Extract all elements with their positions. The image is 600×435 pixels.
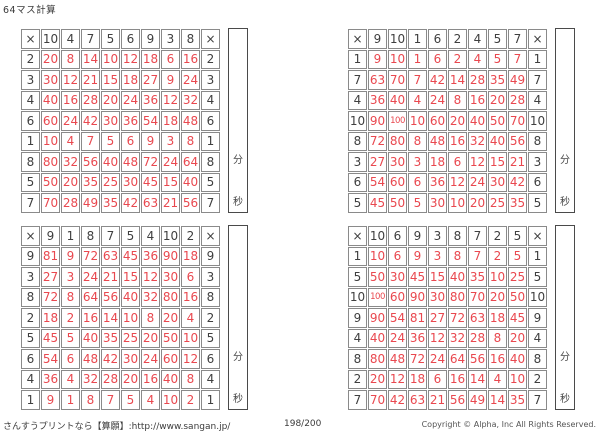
product-cell: 42 xyxy=(101,349,120,369)
product-cell: 16 xyxy=(181,50,200,70)
col-header-cell: 5 xyxy=(121,226,140,246)
product-cell: 50 xyxy=(388,193,407,213)
product-cell: 35 xyxy=(81,173,100,193)
product-cell: 72 xyxy=(141,152,160,172)
product-cell: 40 xyxy=(448,267,467,287)
product-cell: 6 xyxy=(428,50,447,70)
product-cell: 25 xyxy=(121,329,140,349)
product-cell: 8 xyxy=(448,91,467,111)
grid-row: 550203525304515405 xyxy=(21,173,220,193)
product-cell: 90 xyxy=(161,247,180,267)
product-cell: 6 xyxy=(181,267,200,287)
col-header-cell: 6 xyxy=(121,29,140,49)
row-header-cell: 5 xyxy=(201,173,220,193)
footer-copyright: Copyright © Alpha, Inc All Rights Reserv… xyxy=(422,420,596,429)
product-cell: 20 xyxy=(161,308,180,328)
product-cell: 45 xyxy=(508,308,527,328)
product-cell: 63 xyxy=(141,193,160,213)
row-header-cell: 5 xyxy=(348,267,367,287)
product-cell: 70 xyxy=(508,111,527,131)
product-cell: 9 xyxy=(61,247,80,267)
product-cell: 4 xyxy=(488,370,507,390)
operator-cell: × xyxy=(201,29,220,49)
product-cell: 64 xyxy=(181,152,200,172)
operator-cell: × xyxy=(21,29,40,49)
row-header-cell: 3 xyxy=(21,267,40,287)
row-header-cell: 5 xyxy=(201,329,220,349)
minutes-label: 分 xyxy=(556,348,574,363)
product-cell: 20 xyxy=(468,193,487,213)
product-cell: 6 xyxy=(408,173,427,193)
grid-row: 990548127726318459 xyxy=(348,308,547,328)
col-header-cell: 10 xyxy=(368,226,387,246)
product-cell: 32 xyxy=(141,288,160,308)
grid-row: 33012211518279243 xyxy=(21,70,220,90)
product-cell: 90 xyxy=(368,111,387,131)
product-cell: 5 xyxy=(121,390,140,410)
col-header-cell: 3 xyxy=(428,226,447,246)
row-header-cell: 5 xyxy=(528,267,547,287)
grid-row: 11069387251 xyxy=(348,247,547,267)
row-header-cell: 9 xyxy=(528,308,547,328)
row-header-cell: 1 xyxy=(21,390,40,410)
product-cell: 15 xyxy=(101,70,120,90)
product-cell: 20 xyxy=(141,329,160,349)
row-header-cell: 7 xyxy=(348,70,367,90)
product-cell: 27 xyxy=(368,152,387,172)
product-cell: 5 xyxy=(488,50,507,70)
product-cell: 3 xyxy=(161,132,180,152)
product-cell: 24 xyxy=(468,173,487,193)
time-box-top-left: 分 秒 xyxy=(228,28,248,213)
product-cell: 50 xyxy=(368,267,387,287)
col-header-cell: 7 xyxy=(508,29,527,49)
product-cell: 18 xyxy=(121,70,140,90)
row-header-cell: 8 xyxy=(21,288,40,308)
row-header-cell: 4 xyxy=(348,91,367,111)
product-cell: 70 xyxy=(388,70,407,90)
product-cell: 15 xyxy=(488,152,507,172)
product-cell: 14 xyxy=(81,50,100,70)
grid-row: ×106938725× xyxy=(348,226,547,246)
product-cell: 14 xyxy=(101,308,120,328)
product-cell: 56 xyxy=(181,193,200,213)
product-cell: 45 xyxy=(368,193,387,213)
product-cell: 5 xyxy=(61,329,80,349)
row-header-cell: 1 xyxy=(201,132,220,152)
row-header-cell: 7 xyxy=(21,193,40,213)
product-cell: 15 xyxy=(161,173,180,193)
product-cell: 30 xyxy=(121,349,140,369)
product-cell: 7 xyxy=(408,70,427,90)
grid-row: ×918754102× xyxy=(21,226,220,246)
product-cell: 49 xyxy=(468,390,487,410)
product-cell: 100 xyxy=(388,111,407,131)
grid-row: 3273031861215213 xyxy=(348,152,547,172)
row-header-cell: 4 xyxy=(201,91,220,111)
row-header-cell: 8 xyxy=(528,132,547,152)
row-header-cell: 8 xyxy=(21,152,40,172)
product-cell: 56 xyxy=(101,288,120,308)
product-cell: 80 xyxy=(388,132,407,152)
product-cell: 10 xyxy=(181,329,200,349)
row-header-cell: 2 xyxy=(201,308,220,328)
product-cell: 25 xyxy=(101,173,120,193)
col-header-cell: 9 xyxy=(408,226,427,246)
row-header-cell: 10 xyxy=(348,111,367,131)
product-cell: 40 xyxy=(508,349,527,369)
grid-row: 11047569381 xyxy=(21,132,220,152)
operator-cell: × xyxy=(21,226,40,246)
product-cell: 8 xyxy=(61,50,80,70)
product-cell: 8 xyxy=(448,247,467,267)
row-header-cell: 6 xyxy=(528,173,547,193)
product-cell: 4 xyxy=(181,308,200,328)
row-header-cell: 8 xyxy=(348,132,367,152)
row-header-cell: 4 xyxy=(21,91,40,111)
row-header-cell: 3 xyxy=(528,152,547,172)
col-header-cell: 9 xyxy=(368,29,387,49)
product-cell: 36 xyxy=(408,329,427,349)
col-header-cell: 1 xyxy=(408,29,427,49)
product-cell: 10 xyxy=(161,390,180,410)
row-header-cell: 4 xyxy=(348,329,367,349)
row-header-cell: 3 xyxy=(201,70,220,90)
product-cell: 24 xyxy=(81,267,100,287)
grid-row: 109010010602040507010 xyxy=(348,111,547,131)
product-cell: 28 xyxy=(61,193,80,213)
product-cell: 30 xyxy=(388,267,407,287)
product-cell: 18 xyxy=(161,111,180,131)
product-cell: 32 xyxy=(468,132,487,152)
grid-row: 4364042481620284 xyxy=(348,91,547,111)
product-cell: 32 xyxy=(181,91,200,111)
product-cell: 56 xyxy=(448,390,467,410)
product-cell: 64 xyxy=(448,349,467,369)
product-cell: 40 xyxy=(181,173,200,193)
product-cell: 36 xyxy=(368,91,387,111)
col-header-cell: 9 xyxy=(141,29,160,49)
col-header-cell: 4 xyxy=(468,29,487,49)
product-cell: 10 xyxy=(488,267,507,287)
product-cell: 81 xyxy=(408,308,427,328)
product-cell: 1 xyxy=(408,50,427,70)
seconds-label: 秒 xyxy=(556,390,574,405)
product-cell: 10 xyxy=(408,111,427,131)
row-header-cell: 10 xyxy=(528,288,547,308)
product-cell: 63 xyxy=(368,70,387,90)
product-cell: 5 xyxy=(508,247,527,267)
product-cell: 9 xyxy=(161,70,180,90)
row-header-cell: 4 xyxy=(21,370,40,390)
product-cell: 18 xyxy=(408,370,427,390)
row-header-cell: 3 xyxy=(348,152,367,172)
product-cell: 8 xyxy=(81,390,100,410)
col-header-cell: 5 xyxy=(508,226,527,246)
product-cell: 40 xyxy=(101,152,120,172)
row-header-cell: 4 xyxy=(528,329,547,349)
col-header-cell: 4 xyxy=(141,226,160,246)
product-cell: 60 xyxy=(41,111,60,131)
row-header-cell: 1 xyxy=(528,247,547,267)
product-cell: 35 xyxy=(468,267,487,287)
product-cell: 1 xyxy=(61,390,80,410)
product-cell: 21 xyxy=(161,193,180,213)
product-cell: 2 xyxy=(488,247,507,267)
product-cell: 16 xyxy=(488,349,507,369)
product-cell: 70 xyxy=(41,193,60,213)
grid-row: 550304515403510255 xyxy=(348,267,547,287)
product-cell: 18 xyxy=(181,247,200,267)
product-cell: 24 xyxy=(161,152,180,172)
product-cell: 36 xyxy=(141,91,160,111)
product-cell: 40 xyxy=(161,370,180,390)
col-header-cell: 8 xyxy=(81,226,100,246)
product-cell: 49 xyxy=(81,193,100,213)
multiplication-grid-bottom-left: ×918754102×98197263453690189327324211512… xyxy=(20,225,221,411)
product-cell: 30 xyxy=(101,111,120,131)
operator-cell: × xyxy=(201,226,220,246)
row-header-cell: 8 xyxy=(348,349,367,369)
product-cell: 8 xyxy=(141,308,160,328)
minutes-label: 分 xyxy=(229,348,247,363)
grid-row: 2208141012186162 xyxy=(21,50,220,70)
product-cell: 35 xyxy=(488,70,507,90)
product-cell: 3 xyxy=(408,152,427,172)
product-cell: 20 xyxy=(41,50,60,70)
product-cell: 6 xyxy=(428,370,447,390)
multiplication-grid-bottom-right: ×106938725×11069387251550304515403510255… xyxy=(347,225,548,411)
product-cell: 63 xyxy=(101,247,120,267)
product-cell: 80 xyxy=(448,288,467,308)
row-header-cell: 5 xyxy=(21,173,40,193)
product-cell: 4 xyxy=(468,50,487,70)
grid-row: 54550530102025355 xyxy=(348,193,547,213)
product-cell: 35 xyxy=(508,193,527,213)
product-cell: 12 xyxy=(428,329,447,349)
product-cell: 24 xyxy=(61,111,80,131)
product-cell: 14 xyxy=(488,390,507,410)
product-cell: 20 xyxy=(448,111,467,131)
product-cell: 10 xyxy=(121,308,140,328)
product-cell: 12 xyxy=(448,173,467,193)
time-box-bottom-left: 分 秒 xyxy=(228,225,248,410)
product-cell: 12 xyxy=(388,370,407,390)
col-header-cell: 8 xyxy=(448,226,467,246)
product-cell: 20 xyxy=(508,329,527,349)
grid-row: 44024361232288204 xyxy=(348,329,547,349)
row-header-cell: 8 xyxy=(201,288,220,308)
product-cell: 30 xyxy=(488,173,507,193)
row-header-cell: 7 xyxy=(201,193,220,213)
col-header-cell: 10 xyxy=(161,226,180,246)
row-header-cell: 1 xyxy=(348,50,367,70)
product-cell: 8 xyxy=(181,370,200,390)
product-cell: 30 xyxy=(428,288,447,308)
row-header-cell: 2 xyxy=(21,50,40,70)
product-cell: 50 xyxy=(488,111,507,131)
product-cell: 9 xyxy=(408,247,427,267)
product-cell: 10 xyxy=(368,247,387,267)
col-header-cell: 6 xyxy=(428,29,447,49)
product-cell: 4 xyxy=(141,390,160,410)
row-header-cell: 6 xyxy=(21,111,40,131)
product-cell: 48 xyxy=(428,132,447,152)
product-cell: 48 xyxy=(121,152,140,172)
product-cell: 42 xyxy=(428,70,447,90)
row-header-cell: 7 xyxy=(528,70,547,90)
product-cell: 20 xyxy=(121,370,140,390)
product-cell: 21 xyxy=(101,267,120,287)
product-cell: 60 xyxy=(388,173,407,193)
product-cell: 80 xyxy=(41,152,60,172)
multiplication-grid-top-left: ×104756938×22081410121861623301221151827… xyxy=(20,28,221,214)
row-header-cell: 4 xyxy=(201,370,220,390)
grid-row: 880325640487224648 xyxy=(21,152,220,172)
product-cell: 64 xyxy=(81,288,100,308)
row-header-cell: 7 xyxy=(348,390,367,410)
col-header-cell: 2 xyxy=(448,29,467,49)
seconds-label: 秒 xyxy=(229,193,247,208)
product-cell: 6 xyxy=(161,50,180,70)
product-cell: 5 xyxy=(408,193,427,213)
product-cell: 32 xyxy=(448,329,467,349)
product-cell: 54 xyxy=(141,111,160,131)
product-cell: 20 xyxy=(488,288,507,308)
product-cell: 30 xyxy=(41,70,60,90)
product-cell: 48 xyxy=(181,111,200,131)
product-cell: 2 xyxy=(448,50,467,70)
time-box-bottom-right: 分 秒 xyxy=(555,225,575,410)
product-cell: 16 xyxy=(448,132,467,152)
product-cell: 72 xyxy=(81,247,100,267)
product-cell: 81 xyxy=(41,247,60,267)
multiplication-table-top-right: ×910162457×19101624571763707421428354974… xyxy=(347,28,548,214)
footer-page-number: 198/200 xyxy=(284,419,321,429)
product-cell: 24 xyxy=(181,70,200,90)
product-cell: 63 xyxy=(408,390,427,410)
product-cell: 45 xyxy=(408,267,427,287)
product-cell: 18 xyxy=(488,308,507,328)
product-cell: 12 xyxy=(181,349,200,369)
product-cell: 24 xyxy=(121,91,140,111)
product-cell: 10 xyxy=(388,50,407,70)
row-header-cell: 6 xyxy=(348,173,367,193)
grid-row: 65464842302460126 xyxy=(21,349,220,369)
product-cell: 35 xyxy=(508,390,527,410)
product-cell: 21 xyxy=(508,152,527,172)
product-cell: 30 xyxy=(161,267,180,287)
grid-row: ×104756938× xyxy=(21,29,220,49)
product-cell: 10 xyxy=(101,50,120,70)
product-cell: 70 xyxy=(368,390,387,410)
grid-row: 98197263453690189 xyxy=(21,247,220,267)
minutes-label: 分 xyxy=(556,151,574,166)
time-box-top-right: 分 秒 xyxy=(555,28,575,213)
grid-row: 770426321564914357 xyxy=(348,390,547,410)
product-cell: 50 xyxy=(161,329,180,349)
row-header-cell: 3 xyxy=(21,70,40,90)
seconds-label: 秒 xyxy=(229,390,247,405)
product-cell: 100 xyxy=(368,288,387,308)
row-header-cell: 2 xyxy=(201,50,220,70)
row-header-cell: 9 xyxy=(201,247,220,267)
product-cell: 12 xyxy=(141,267,160,287)
product-cell: 42 xyxy=(81,111,100,131)
worksheet-page: 64マス計算 ×104756938×2208141012186162330122… xyxy=(0,0,600,435)
col-header-cell: 2 xyxy=(488,226,507,246)
row-header-cell: 10 xyxy=(528,111,547,131)
operator-cell: × xyxy=(348,29,367,49)
product-cell: 12 xyxy=(61,70,80,90)
product-cell: 40 xyxy=(41,91,60,111)
grid-row: 87286456403280168 xyxy=(21,288,220,308)
multiplication-table-bottom-left: ×918754102×98197263453690189327324211512… xyxy=(20,225,221,411)
footer-site-text: さんすうプリントなら【算願】:http://www.sangan.jp/ xyxy=(3,419,230,432)
product-cell: 16 xyxy=(81,308,100,328)
product-cell: 16 xyxy=(61,91,80,111)
product-cell: 24 xyxy=(141,349,160,369)
product-cell: 32 xyxy=(61,152,80,172)
product-cell: 25 xyxy=(508,267,527,287)
product-cell: 3 xyxy=(428,247,447,267)
product-cell: 80 xyxy=(368,349,387,369)
product-cell: 72 xyxy=(41,288,60,308)
multiplication-table-top-left: ×104756938×22081410121861623301221151827… xyxy=(20,28,221,214)
product-cell: 2 xyxy=(181,390,200,410)
product-cell: 28 xyxy=(81,91,100,111)
product-cell: 6 xyxy=(121,132,140,152)
row-header-cell: 2 xyxy=(21,308,40,328)
product-cell: 36 xyxy=(141,247,160,267)
product-cell: 27 xyxy=(41,267,60,287)
product-cell: 32 xyxy=(81,370,100,390)
product-cell: 45 xyxy=(141,173,160,193)
grid-row: 76370742142835497 xyxy=(348,70,547,90)
row-header-cell: 2 xyxy=(348,370,367,390)
product-cell: 42 xyxy=(121,193,140,213)
product-cell: 48 xyxy=(81,349,100,369)
product-cell: 7 xyxy=(101,390,120,410)
product-cell: 28 xyxy=(101,370,120,390)
product-cell: 36 xyxy=(428,173,447,193)
product-cell: 56 xyxy=(508,132,527,152)
product-cell: 30 xyxy=(121,173,140,193)
grid-row: 87280848163240568 xyxy=(348,132,547,152)
product-cell: 36 xyxy=(41,370,60,390)
product-cell: 60 xyxy=(428,111,447,131)
product-cell: 42 xyxy=(388,390,407,410)
grid-row: 54554035252050105 xyxy=(21,329,220,349)
product-cell: 24 xyxy=(428,349,447,369)
product-cell: 7 xyxy=(81,132,100,152)
product-cell: 16 xyxy=(181,288,200,308)
product-cell: 16 xyxy=(468,91,487,111)
product-cell: 12 xyxy=(468,152,487,172)
product-cell: 24 xyxy=(388,329,407,349)
product-cell: 9 xyxy=(41,390,60,410)
grid-row: 4364322820164084 xyxy=(21,370,220,390)
product-cell: 54 xyxy=(388,308,407,328)
operator-cell: × xyxy=(528,226,547,246)
row-header-cell: 2 xyxy=(528,370,547,390)
product-cell: 24 xyxy=(428,91,447,111)
product-cell: 4 xyxy=(408,91,427,111)
row-header-cell: 9 xyxy=(21,247,40,267)
product-cell: 25 xyxy=(488,193,507,213)
product-cell: 28 xyxy=(468,70,487,90)
product-cell: 20 xyxy=(488,91,507,111)
